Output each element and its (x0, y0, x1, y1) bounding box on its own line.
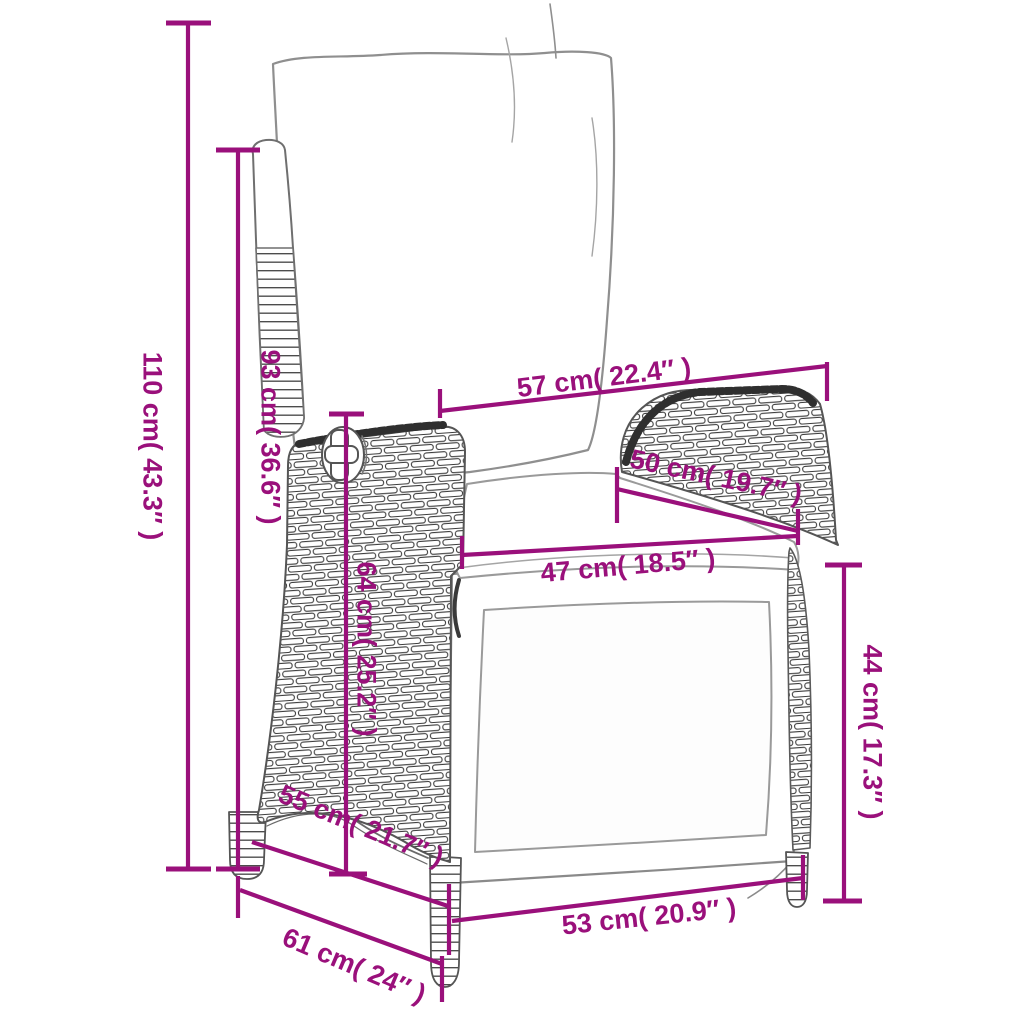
base-panel (448, 560, 799, 898)
dimension-label-total-height: 110 cm( 43.3″ ) (137, 352, 168, 541)
dimension-label-backrest-height: 93 cm( 36.6″ ) (255, 349, 286, 524)
right-side-post (788, 548, 812, 850)
dimension-line-110cm (166, 23, 211, 869)
dimension-diagram: 110 cm( 43.3″ ) 93 cm( 36.6″ ) 57 cm( 22… (0, 0, 1024, 1024)
dimension-label-armrest-height: 44 cm( 17.3″ ) (857, 644, 888, 819)
dimension-label-backrest-inner-height: 64 cm( 25.2″ ) (351, 561, 382, 736)
dimension-line-93cm (216, 150, 260, 869)
